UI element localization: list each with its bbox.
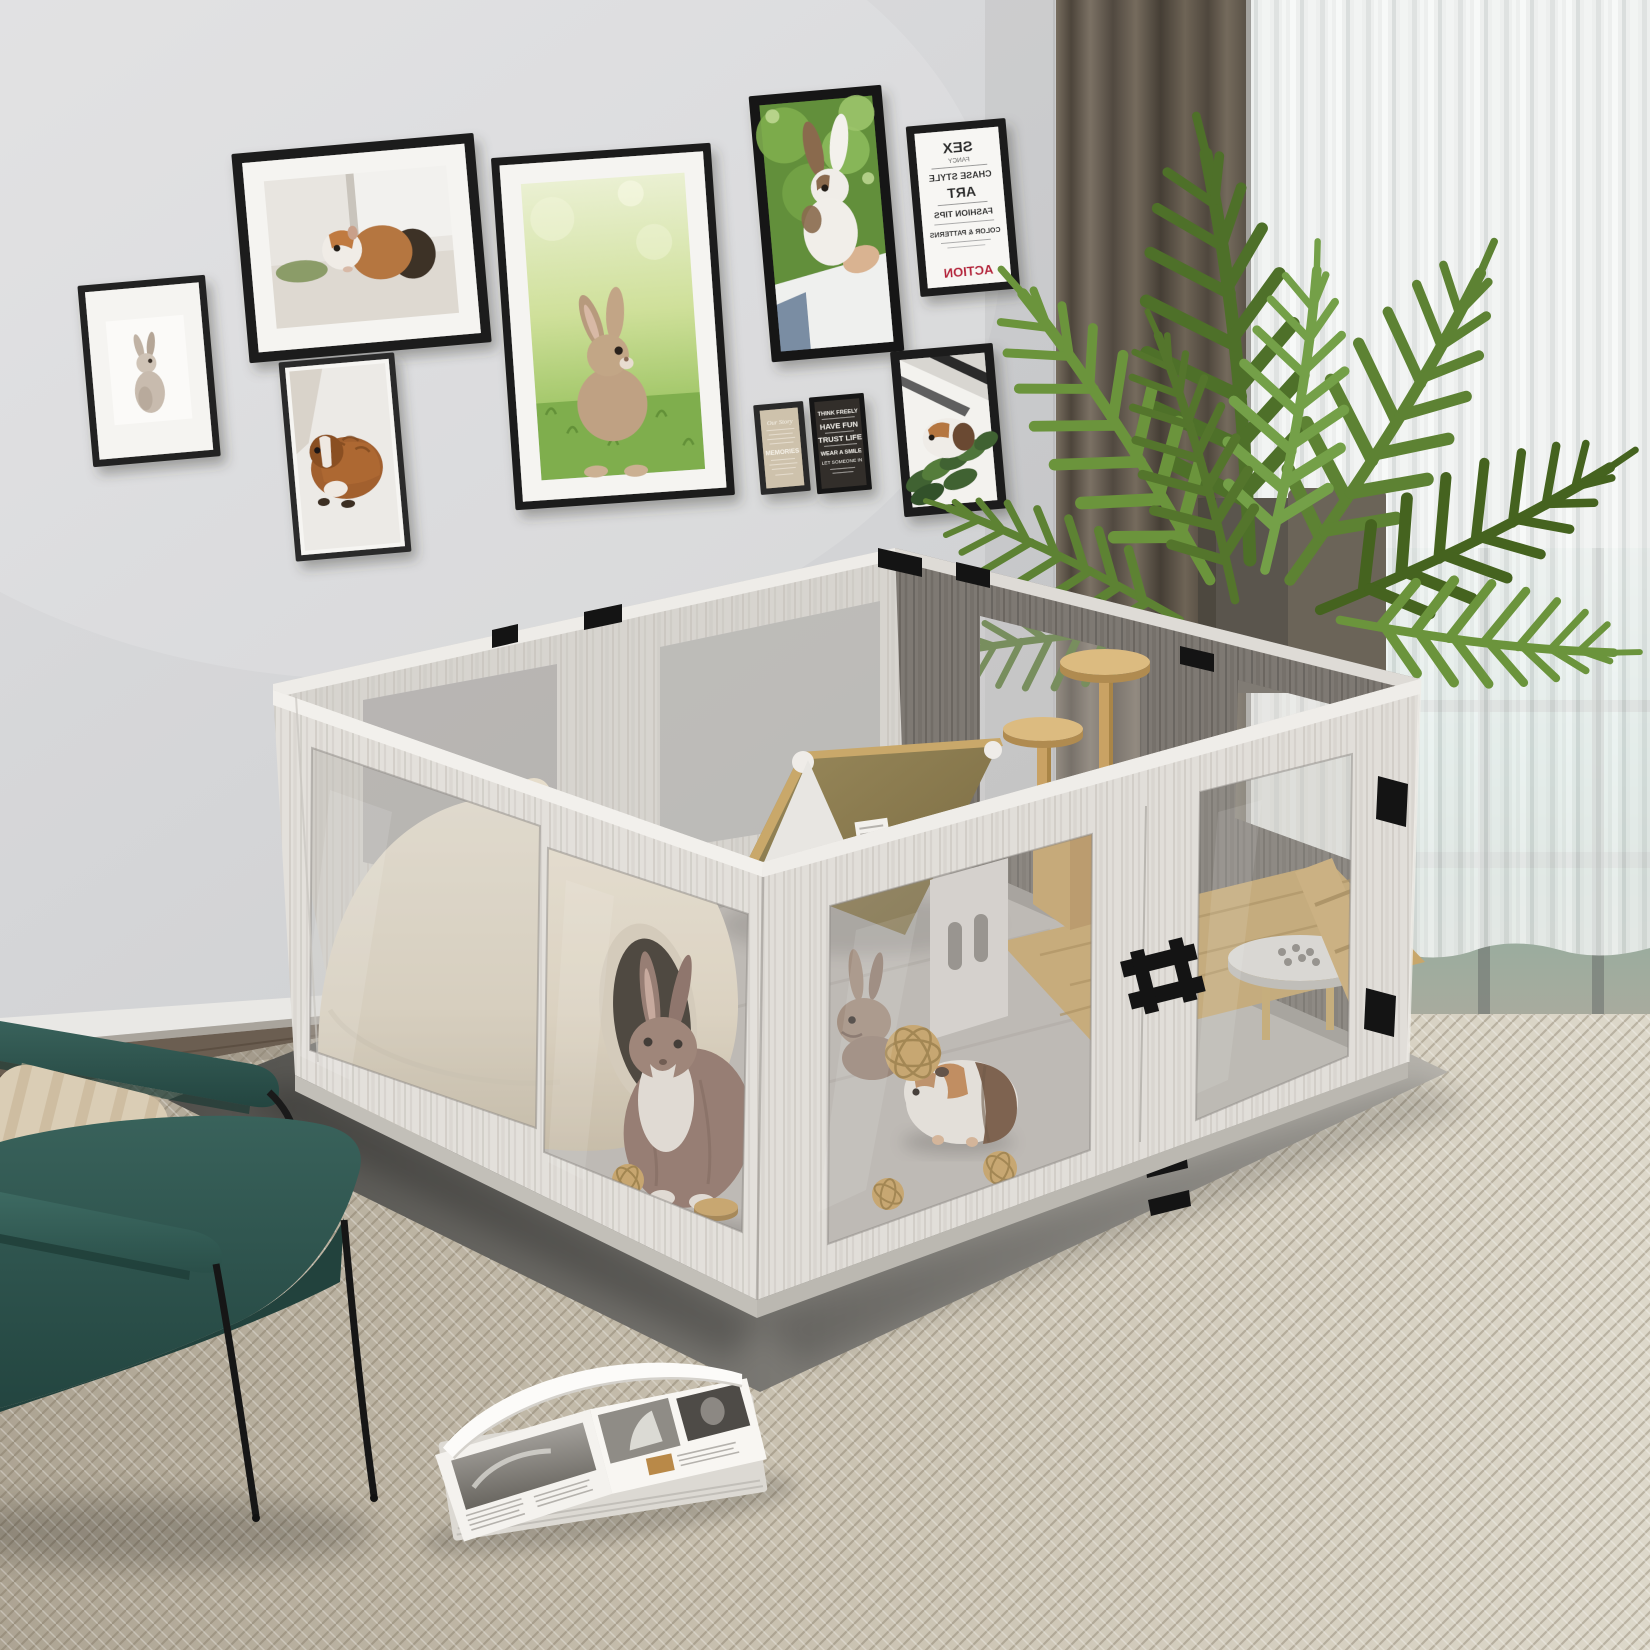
cat-tree-perch-low: [1003, 717, 1083, 741]
photo-guinea-pig-windowsill: [264, 165, 459, 328]
room-scene: SEX FANCY CHASE STYLE ART FASHION TIPS C…: [0, 0, 1650, 1650]
poster-line-sex: SEX: [942, 138, 973, 158]
frame-rabbit-watercolor: [77, 275, 220, 467]
frame-beige-quote: Our Story MEMORIES: [753, 401, 811, 495]
frame-guinea-pig-greenery: [890, 343, 1007, 517]
frame-guinea-pig-orange: [279, 352, 412, 561]
cat-tree-perch-high: [1060, 649, 1150, 675]
photo-rabbit-watercolor: [106, 315, 193, 425]
scene-render: SEX FANCY CHASE STYLE ART FASHION TIPS C…: [0, 0, 1650, 1650]
photo-bunny-on-grass: [521, 173, 706, 484]
hinge-clip: [1364, 988, 1396, 1037]
poster-line-art: ART: [946, 183, 977, 201]
photo-guinea-pig-orange: [289, 363, 400, 551]
frame-rabbit-held: [749, 85, 905, 363]
frame-guinea-pig-windowsill: [231, 133, 491, 363]
hinge-clip: [1376, 776, 1408, 827]
frame-bunny-on-grass: [491, 143, 735, 510]
frame-black-quote: THINK FREELY HAVE FUN TRUST LIFE WEAR A …: [809, 393, 872, 494]
